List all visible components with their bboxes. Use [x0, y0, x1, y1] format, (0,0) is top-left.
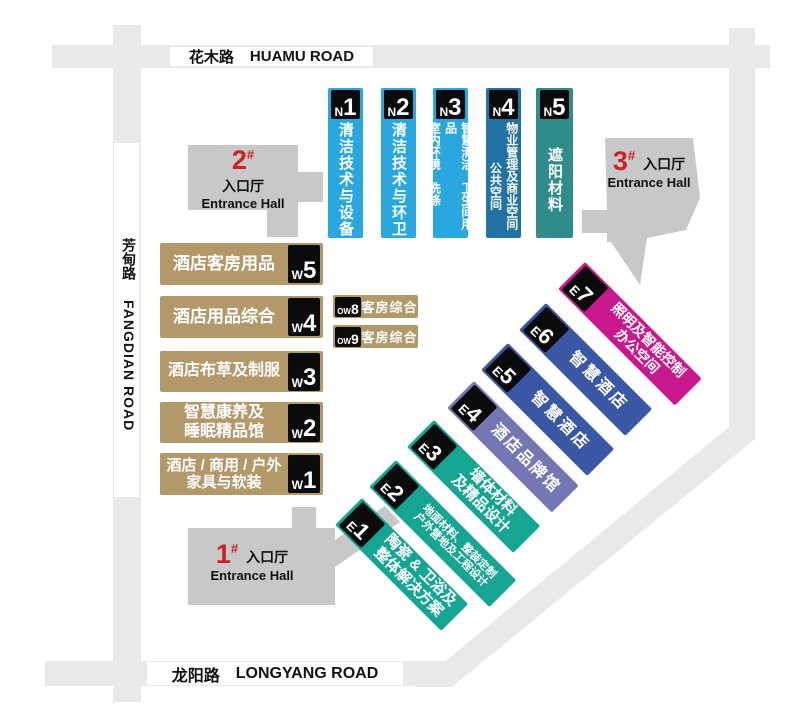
- hall-w5: 酒店客房用品 W5: [160, 243, 323, 285]
- hall-n4: N4 物业管理及商业空间 公共空间: [486, 88, 521, 238]
- hall-n1-badge: N1: [331, 90, 360, 119]
- hall-w1-label: 酒店 / 商用 / 户外家具与软装: [160, 457, 288, 492]
- hall-n4-label: 物业管理及商业空间 公共空间: [487, 122, 519, 238]
- hall-n4-badge: N4: [489, 90, 518, 119]
- hall-n2: N2 清洁技术与环卫: [381, 88, 416, 238]
- road-longyang-zh: 龙阳路: [172, 662, 220, 686]
- hall-w2-label: 智慧康养及睡眠精品馆: [160, 404, 288, 441]
- entrance-3-zh: 入口厅: [643, 154, 685, 174]
- hall-n1-label: 清洁技术与设备: [338, 121, 353, 238]
- hall-w3: 酒店布草及制服 W3: [160, 351, 323, 392]
- entrance-1-zh: 入口厅: [246, 547, 288, 567]
- hall-w5-badge: W5: [288, 245, 320, 283]
- hall-n1: N1 清洁技术与设备: [328, 88, 363, 238]
- hall-w2-badge: W2: [288, 404, 320, 442]
- hall-ow8: OW8 客房综合: [333, 295, 418, 318]
- entrance-2-zh: 入口厅: [188, 176, 298, 196]
- entrance-hall-1-label: 1# 入口厅 Entrance Hall: [190, 541, 314, 583]
- entrance-2-number: 2#: [188, 147, 298, 174]
- hall-w3-label: 酒店布草及制服: [160, 362, 288, 380]
- hall-w4-badge: W4: [288, 298, 320, 336]
- road-fangdian-en: FANGDIAN ROAD: [121, 300, 137, 431]
- entrance-2-en: Entrance Hall: [188, 196, 298, 211]
- road-huamu-en: HUAMU ROAD: [250, 48, 354, 65]
- entrance-hall-2-label: 2# 入口厅 Entrance Hall: [188, 147, 298, 211]
- hall-n5-label: 遮阳材料: [547, 121, 562, 238]
- road-huamu: [52, 45, 770, 68]
- road-label-fangdian: 芳甸路 FANGDIAN ROAD: [114, 143, 139, 497]
- road-huamu-zh: 花木路: [189, 46, 234, 67]
- hall-ow8-badge: OW8: [335, 297, 361, 317]
- hall-ow9-badge: OW9: [335, 327, 361, 347]
- entrance-1-number: 1#: [216, 541, 238, 568]
- entrance-3-number: 3#: [613, 148, 635, 175]
- hall-n3: N3 智慧清洁 卫生间用品 室内环境 洗涤: [433, 88, 468, 238]
- hall-w4: 酒店用品综合 W4: [160, 296, 323, 338]
- entrance-hall-3-label: 3# 入口厅 Entrance Hall: [601, 148, 697, 190]
- entrance-3-en: Entrance Hall: [601, 175, 697, 190]
- hall-w2: 智慧康养及睡眠精品馆 W2: [160, 402, 323, 443]
- hall-ow8-label: 客房综合: [361, 297, 418, 316]
- hall-w1-badge: W1: [288, 455, 320, 493]
- hall-n3-badge: N3: [436, 90, 465, 119]
- road-fangdian-zh: 芳甸路: [121, 238, 137, 280]
- hall-ow9-label: 客房综合: [361, 327, 418, 346]
- hall-w5-label: 酒店客房用品: [160, 254, 288, 274]
- road-label-huamu: 花木路 HUAMU ROAD: [170, 47, 373, 66]
- hall-n5-badge: N5: [540, 90, 569, 119]
- hall-w3-badge: W3: [288, 353, 320, 391]
- expo-floor-map: 花木路 HUAMU ROAD 芳甸路 FANGDIAN ROAD 龙阳路 LON…: [0, 0, 800, 717]
- hall-w4-label: 酒店用品综合: [160, 307, 288, 327]
- hall-w1: 酒店 / 商用 / 户外家具与软装 W1: [160, 453, 323, 495]
- hall-n2-badge: N2: [384, 90, 413, 119]
- entrance-1-en: Entrance Hall: [190, 568, 314, 583]
- road-longyang-en: LONGYANG ROAD: [236, 665, 379, 683]
- hall-n3-label: 智慧清洁 卫生间用品 室内环境 洗涤: [426, 122, 475, 238]
- hall-ow9: OW9 客房综合: [333, 325, 418, 348]
- hall-n2-label: 清洁技术与环卫: [391, 121, 406, 238]
- hall-n5: N5 遮阳材料: [536, 88, 573, 238]
- road-label-longyang: 龙阳路 LONGYANG ROAD: [147, 662, 403, 685]
